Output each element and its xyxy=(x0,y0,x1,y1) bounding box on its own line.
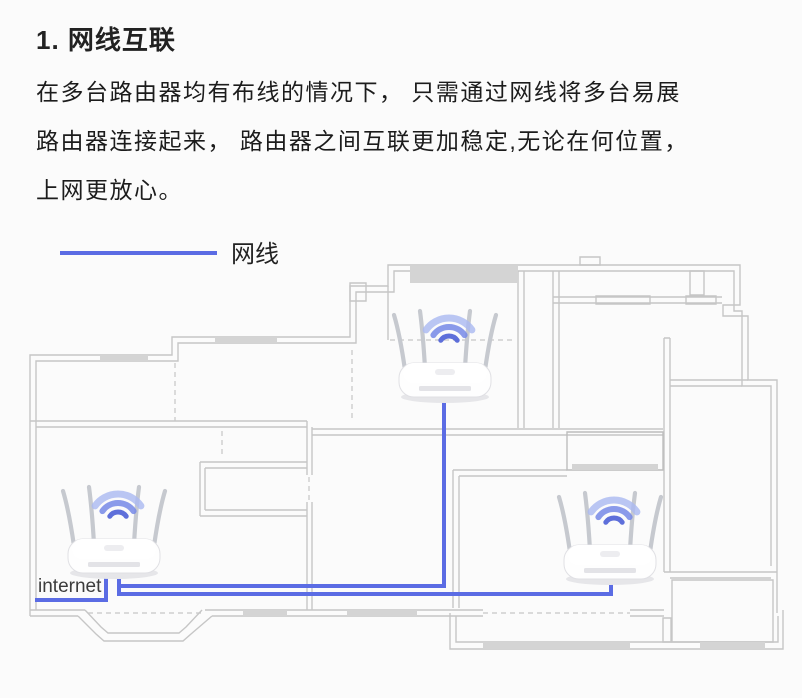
legend-label: 网线 xyxy=(231,241,279,268)
router-bottom-right xyxy=(559,493,661,585)
cable-to-bottom-right-router xyxy=(119,573,611,594)
router-internet xyxy=(63,487,165,579)
floor-plan-walls xyxy=(30,257,783,649)
floor-plan-diagram: 网线 xyxy=(0,0,802,698)
router-top xyxy=(394,311,496,403)
legend: 网线 xyxy=(60,241,279,268)
cable-to-top-router xyxy=(119,397,444,586)
internet-label: internet xyxy=(38,576,102,597)
